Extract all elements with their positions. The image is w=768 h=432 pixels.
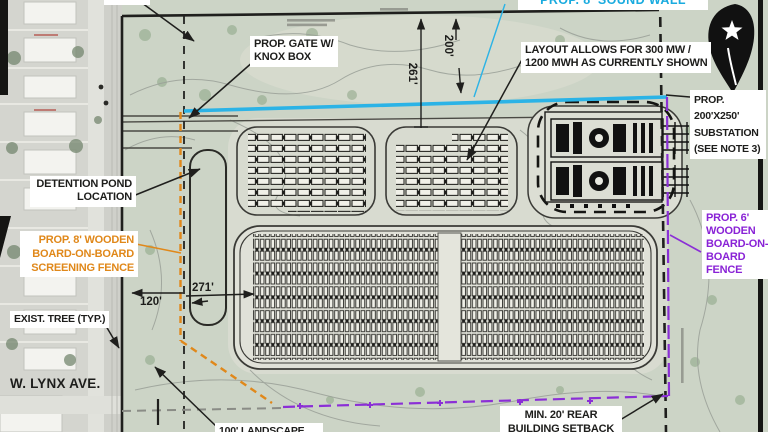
- cutoff-label-top: [104, 0, 150, 5]
- substation: [528, 102, 689, 218]
- board-fence-label: PROP. 6' WOODEN BOARD-ON- BOARD FENCE: [702, 210, 768, 279]
- sound-wall-label: PROP. 8' SOUND WALL: [518, 0, 708, 10]
- setback-label-line2: BUILDING SETBACK: [504, 422, 618, 432]
- board-fence-line4: BOARD: [706, 251, 768, 264]
- layout-label-line1: LAYOUT ALLOWS FOR 300 MW /: [525, 44, 707, 57]
- aerial-left-neighborhood: [0, 0, 122, 432]
- battery-yard-a: [237, 127, 375, 215]
- screen-fence-line2: BOARD-ON-BOARD: [24, 247, 134, 261]
- site-plan: PROP. 8' SOUND WALL PROP. GATE W/ KNOX B…: [0, 0, 768, 432]
- board-fence-line1: PROP. 6': [706, 212, 768, 225]
- substation-label: PROP. 200'X250' SUBSTATION (SEE NOTE 3): [690, 90, 766, 159]
- detention-label-line1: DETENTION POND: [34, 178, 132, 191]
- dim-120: 120': [140, 297, 162, 309]
- dim-271: 271': [192, 283, 214, 295]
- gate-label: PROP. GATE W/ KNOX BOX: [250, 36, 338, 67]
- screen-fence-line1: PROP. 8' WOODEN: [24, 233, 134, 247]
- substation-label-line4: (SEE NOTE 3): [694, 141, 762, 157]
- screen-fence-line3: SCREENING FENCE: [24, 261, 134, 275]
- substation-label-line2: 200'X250': [694, 108, 762, 124]
- street-label: W. LYNX AVE.: [6, 374, 104, 394]
- dim-261: 261': [405, 55, 417, 93]
- exist-tree-label: EXIST. TREE (TYP.): [10, 311, 109, 328]
- detention-label-line2: LOCATION: [34, 191, 132, 204]
- rear-setback-label: MIN. 20' REAR BUILDING SETBACK: [500, 406, 622, 432]
- battery-yard-main: [234, 226, 657, 369]
- landscape-label: 100' LANDSCAPE: [215, 423, 323, 432]
- detention-pond-label: DETENTION POND LOCATION: [30, 176, 136, 207]
- dim-200: 200': [441, 27, 453, 65]
- screening-fence-label: PROP. 8' WOODEN BOARD-ON-BOARD SCREENING…: [20, 231, 138, 277]
- layout-label: LAYOUT ALLOWS FOR 300 MW / 1200 MWH AS C…: [521, 42, 711, 73]
- board-fence-line2: WOODEN: [706, 225, 768, 238]
- board-fence-line5: FENCE: [706, 264, 768, 277]
- setback-label-line1: MIN. 20' REAR: [504, 408, 618, 422]
- board-fence-line3: BOARD-ON-: [706, 238, 768, 251]
- substation-label-line3: SUBSTATION: [694, 125, 762, 141]
- layout-label-line2: 1200 MWH AS CURRENTLY SHOWN: [525, 57, 707, 70]
- substation-label-line1: PROP.: [694, 92, 762, 108]
- gate-label-line1: PROP. GATE W/: [254, 38, 334, 51]
- gate-label-line2: KNOX BOX: [254, 51, 334, 64]
